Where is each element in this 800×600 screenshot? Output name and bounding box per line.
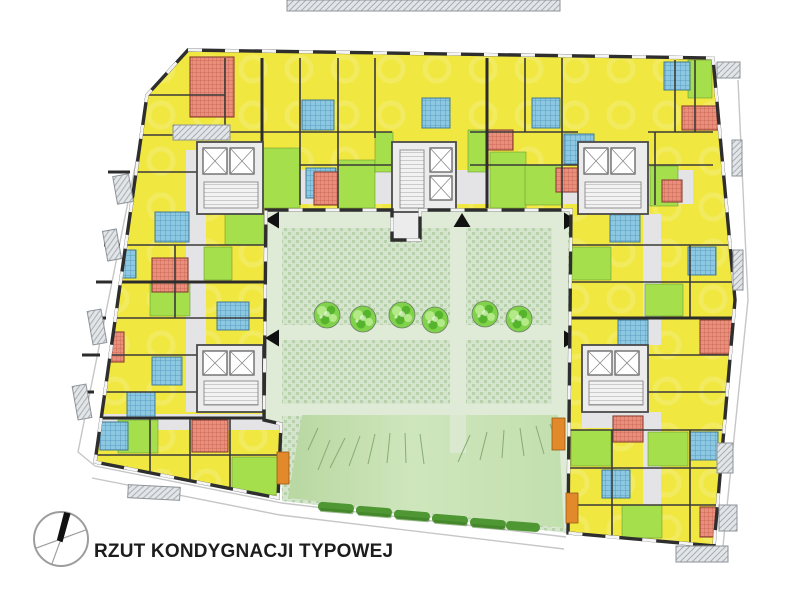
stair-core-bottom-right bbox=[582, 345, 648, 412]
north-compass bbox=[34, 512, 88, 566]
stair-core-bottom-left bbox=[197, 345, 263, 412]
courtyard bbox=[264, 210, 578, 533]
tree bbox=[472, 301, 498, 327]
floor-plan-drawing bbox=[0, 0, 800, 600]
lawn bbox=[288, 415, 564, 532]
floor-plan-page: RZUT KONDYGNACJI TYPOWEJ bbox=[0, 0, 800, 600]
tree bbox=[389, 302, 415, 328]
tree bbox=[506, 306, 532, 332]
tree bbox=[314, 302, 340, 328]
stair-core-top-left bbox=[197, 142, 263, 214]
tree bbox=[350, 306, 376, 332]
tree bbox=[422, 307, 448, 333]
plan-title: RZUT KONDYGNACJI TYPOWEJ bbox=[94, 541, 393, 563]
stair-core-top-right bbox=[578, 142, 648, 214]
